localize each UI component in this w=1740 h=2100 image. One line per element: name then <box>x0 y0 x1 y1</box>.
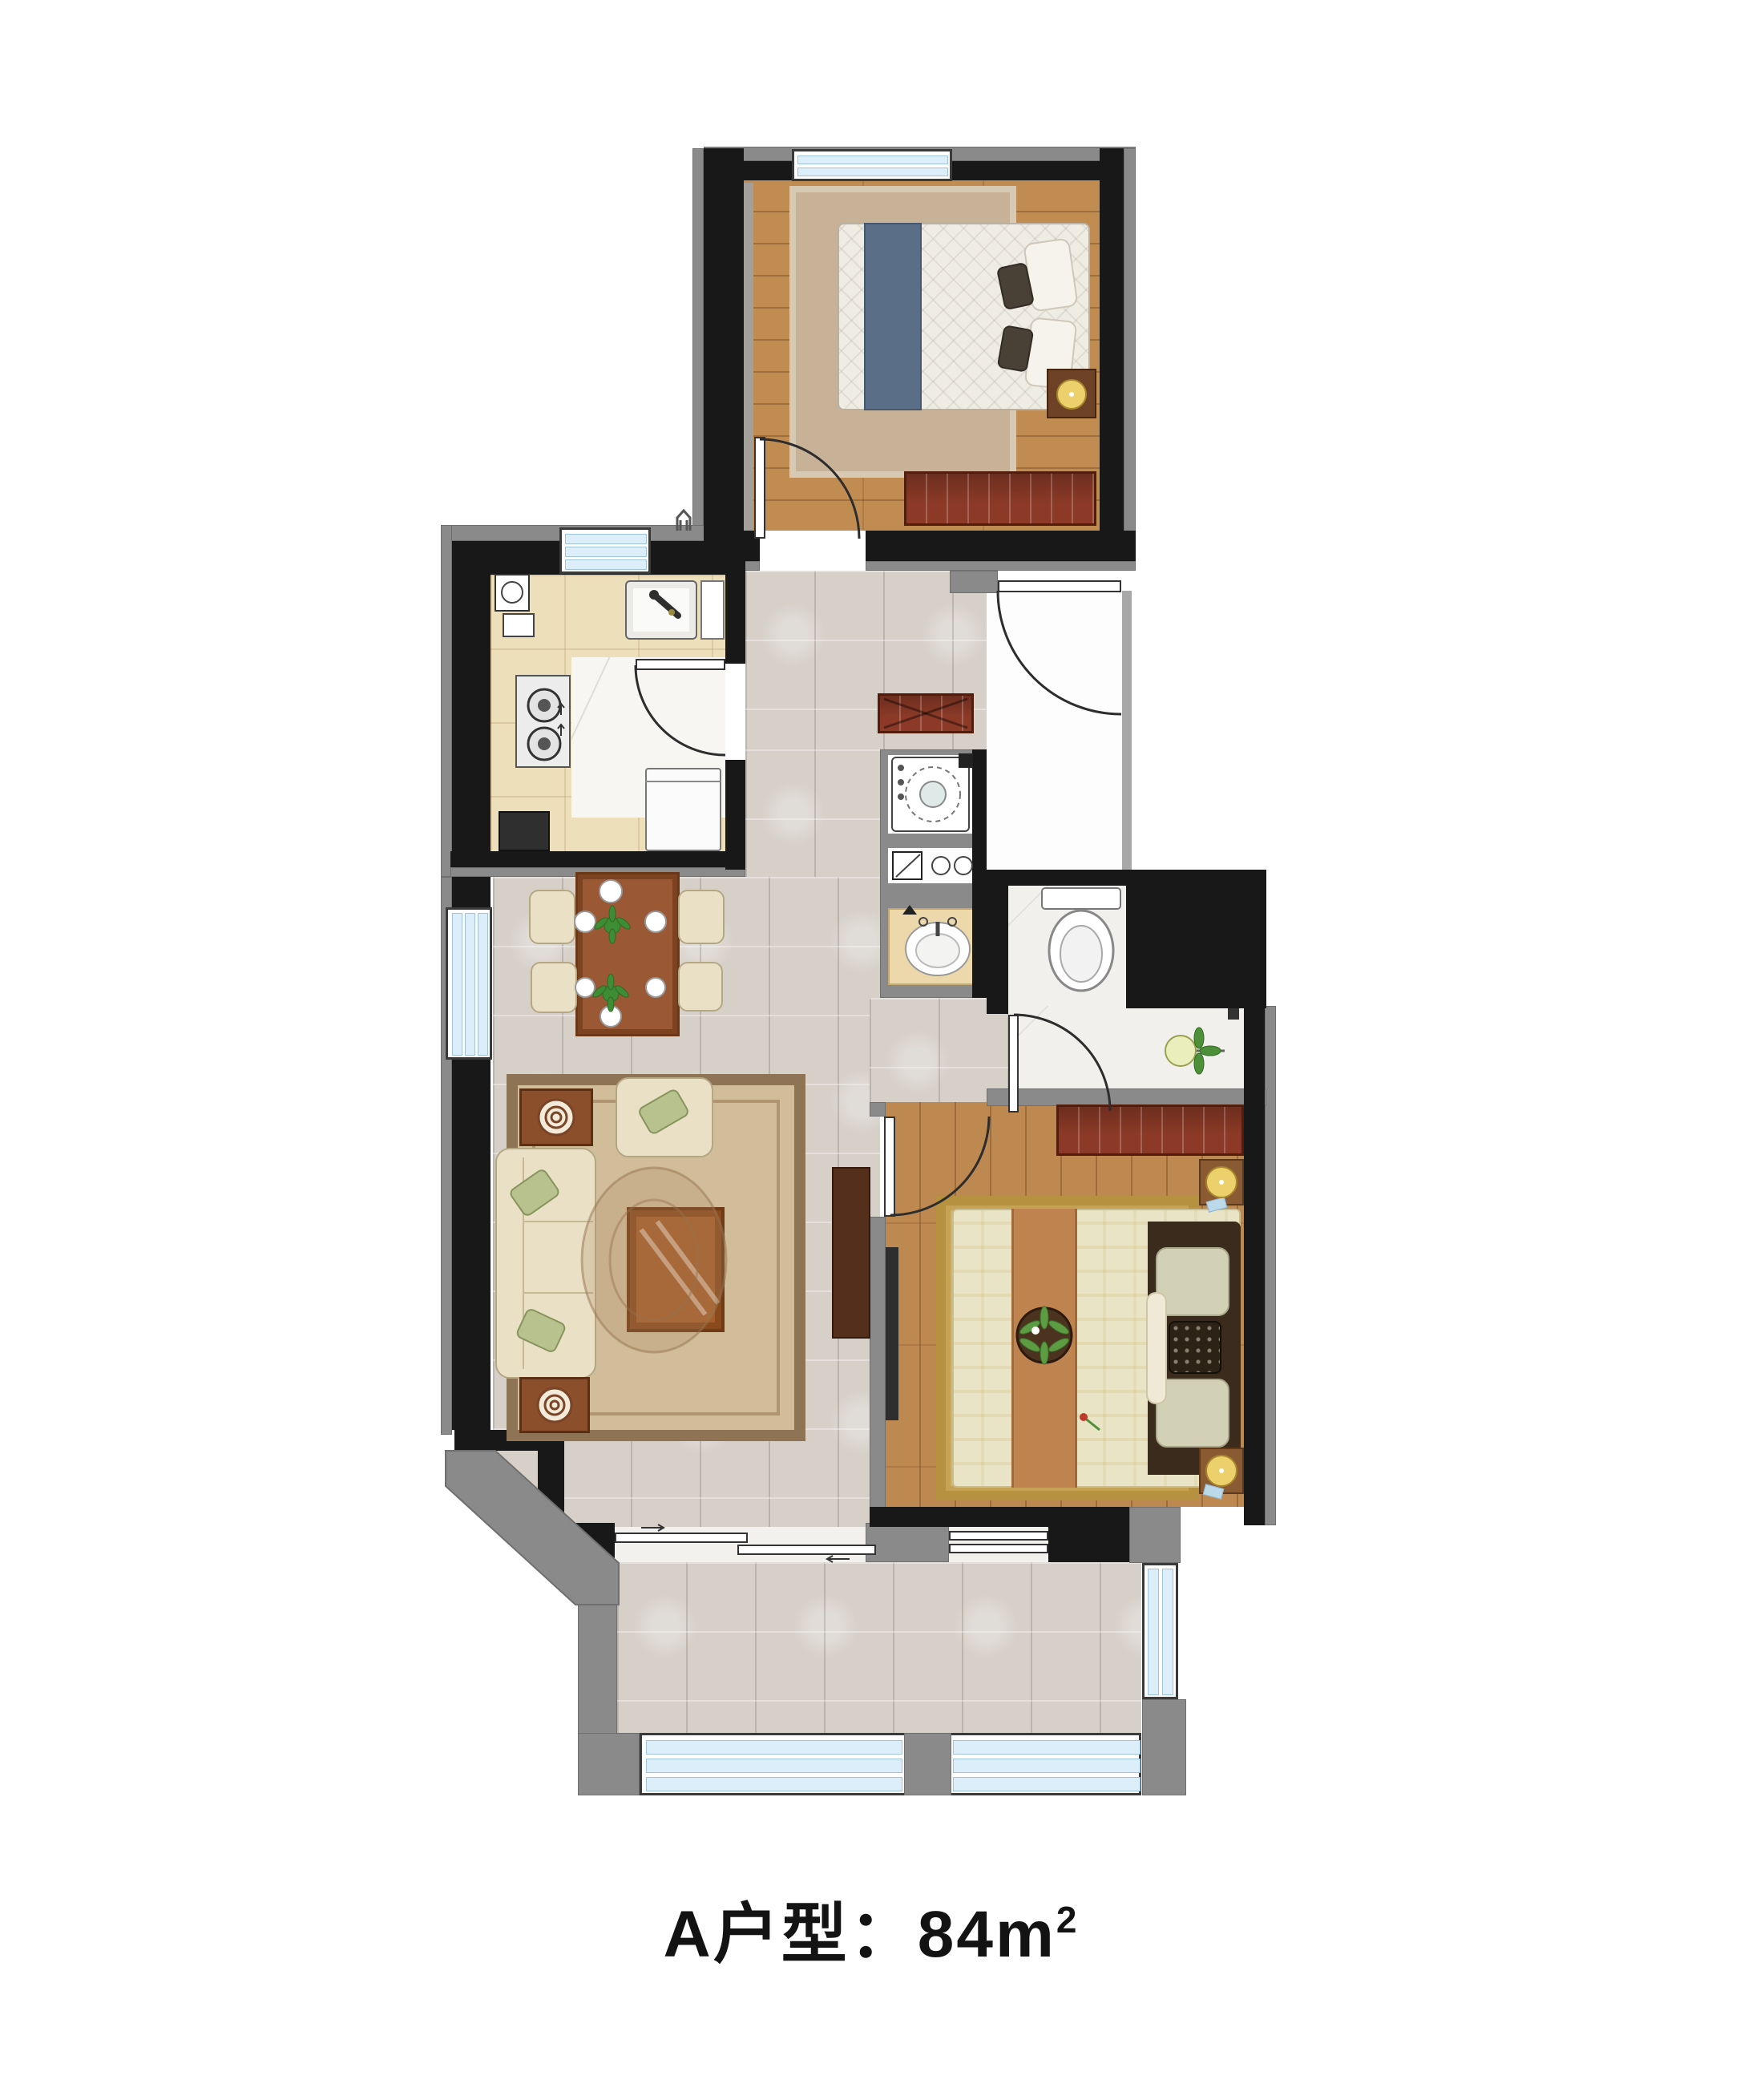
washing-machine <box>891 757 970 832</box>
pillow <box>1169 1321 1221 1374</box>
tv-cabinet <box>832 1167 870 1339</box>
master-south-window <box>949 1544 1048 1553</box>
dining-table <box>575 872 680 1036</box>
dining-chair <box>678 890 725 944</box>
kitchen-door-leaf <box>636 659 725 670</box>
balcony-pier <box>866 1523 949 1562</box>
wall-segment <box>870 1507 1129 1527</box>
wall-tv <box>886 1247 898 1420</box>
wall-accent <box>1129 1507 1181 1563</box>
mop-sink <box>892 851 922 880</box>
plan-title: A户型：84m2 <box>0 1880 1740 1976</box>
wall-segment <box>452 877 491 909</box>
wall-accent <box>692 148 704 557</box>
bolster-pillow <box>1146 1292 1167 1404</box>
kitchen-side-cabinet <box>700 580 725 640</box>
bedroom2-column-face <box>744 183 753 531</box>
dining-chair <box>678 962 723 1012</box>
wall-accent <box>1122 591 1132 870</box>
balcony-sliding-door-leaf <box>615 1533 748 1543</box>
master-west-wall <box>870 1217 886 1535</box>
wall-segment <box>1100 148 1124 557</box>
bathroom-south-wall <box>987 1088 1266 1106</box>
wall-accent <box>1124 148 1136 557</box>
balcony-left-wall <box>578 1563 617 1735</box>
wall-segment <box>972 749 987 998</box>
balcony-corner <box>578 1733 640 1795</box>
bed-runner <box>864 223 922 410</box>
bathroom-floor <box>1008 1006 1247 1088</box>
window-mullion <box>904 1733 951 1795</box>
wall-accent <box>441 525 452 877</box>
shoe-cabinet <box>878 693 974 733</box>
wall-segment <box>452 1058 491 1430</box>
balcony-front-window <box>640 1733 1141 1795</box>
wall-segment <box>450 851 745 867</box>
duct-shaft <box>1126 870 1266 1008</box>
wall-segment <box>704 148 744 557</box>
balcony-side-window <box>1142 1563 1178 1699</box>
entry-wall-stub <box>950 571 998 593</box>
water-heater <box>495 574 530 612</box>
kitchen-dark-cabinet <box>499 811 550 851</box>
bedroom2-door-leaf <box>754 437 765 539</box>
stove <box>515 675 571 768</box>
side-table <box>519 1377 590 1433</box>
kitchen-sink <box>625 580 697 640</box>
master-west-wall <box>870 1102 886 1117</box>
balcony-sliding-door-leaf <box>737 1545 876 1555</box>
side-table <box>519 1088 593 1146</box>
bedroom2-window <box>792 149 952 181</box>
wall-segment <box>987 870 1008 1014</box>
bathroom-floor <box>1008 886 1126 1006</box>
wall-segment <box>1244 1006 1265 1525</box>
dining-window <box>446 907 492 1060</box>
entry-vestibule-floor <box>987 593 1124 870</box>
kitchen-window <box>559 527 651 574</box>
utility-dark-box <box>959 753 973 768</box>
balcony-corner <box>1142 1699 1186 1795</box>
wall-accent <box>1265 1006 1276 1525</box>
sofa-cushion-line <box>524 1221 593 1222</box>
plan-title-superscript: 2 <box>1056 1899 1077 1940</box>
wall-segment <box>866 531 1136 561</box>
wall-segment <box>725 557 745 664</box>
refrigerator-door-line <box>645 781 721 782</box>
plan-title-text: A户型：84m <box>664 1898 1056 1971</box>
wall-segment <box>1048 1523 1129 1562</box>
wall-segment <box>452 541 491 851</box>
master-door-leaf <box>884 1117 895 1217</box>
master-bed-runner <box>1011 1209 1077 1488</box>
dining-chair <box>529 890 575 944</box>
dining-chair <box>531 962 577 1013</box>
master-wardrobe <box>1056 1105 1244 1156</box>
nightstand <box>1047 369 1096 418</box>
coffee-table <box>627 1207 725 1332</box>
wall-segment <box>564 1523 615 1562</box>
balcony-floor <box>617 1562 1141 1735</box>
sofa-cushion-line <box>524 1292 593 1294</box>
wall-accent <box>866 561 1136 571</box>
floor-plan <box>0 0 1740 2100</box>
master-south-window <box>949 1531 1048 1541</box>
bedroom2-dresser <box>904 471 1096 526</box>
kitchen-appliance <box>503 613 535 637</box>
wall-segment <box>538 1451 564 1527</box>
bathroom-door-leaf <box>1008 1015 1019 1113</box>
entry-door-leaf <box>998 580 1121 592</box>
